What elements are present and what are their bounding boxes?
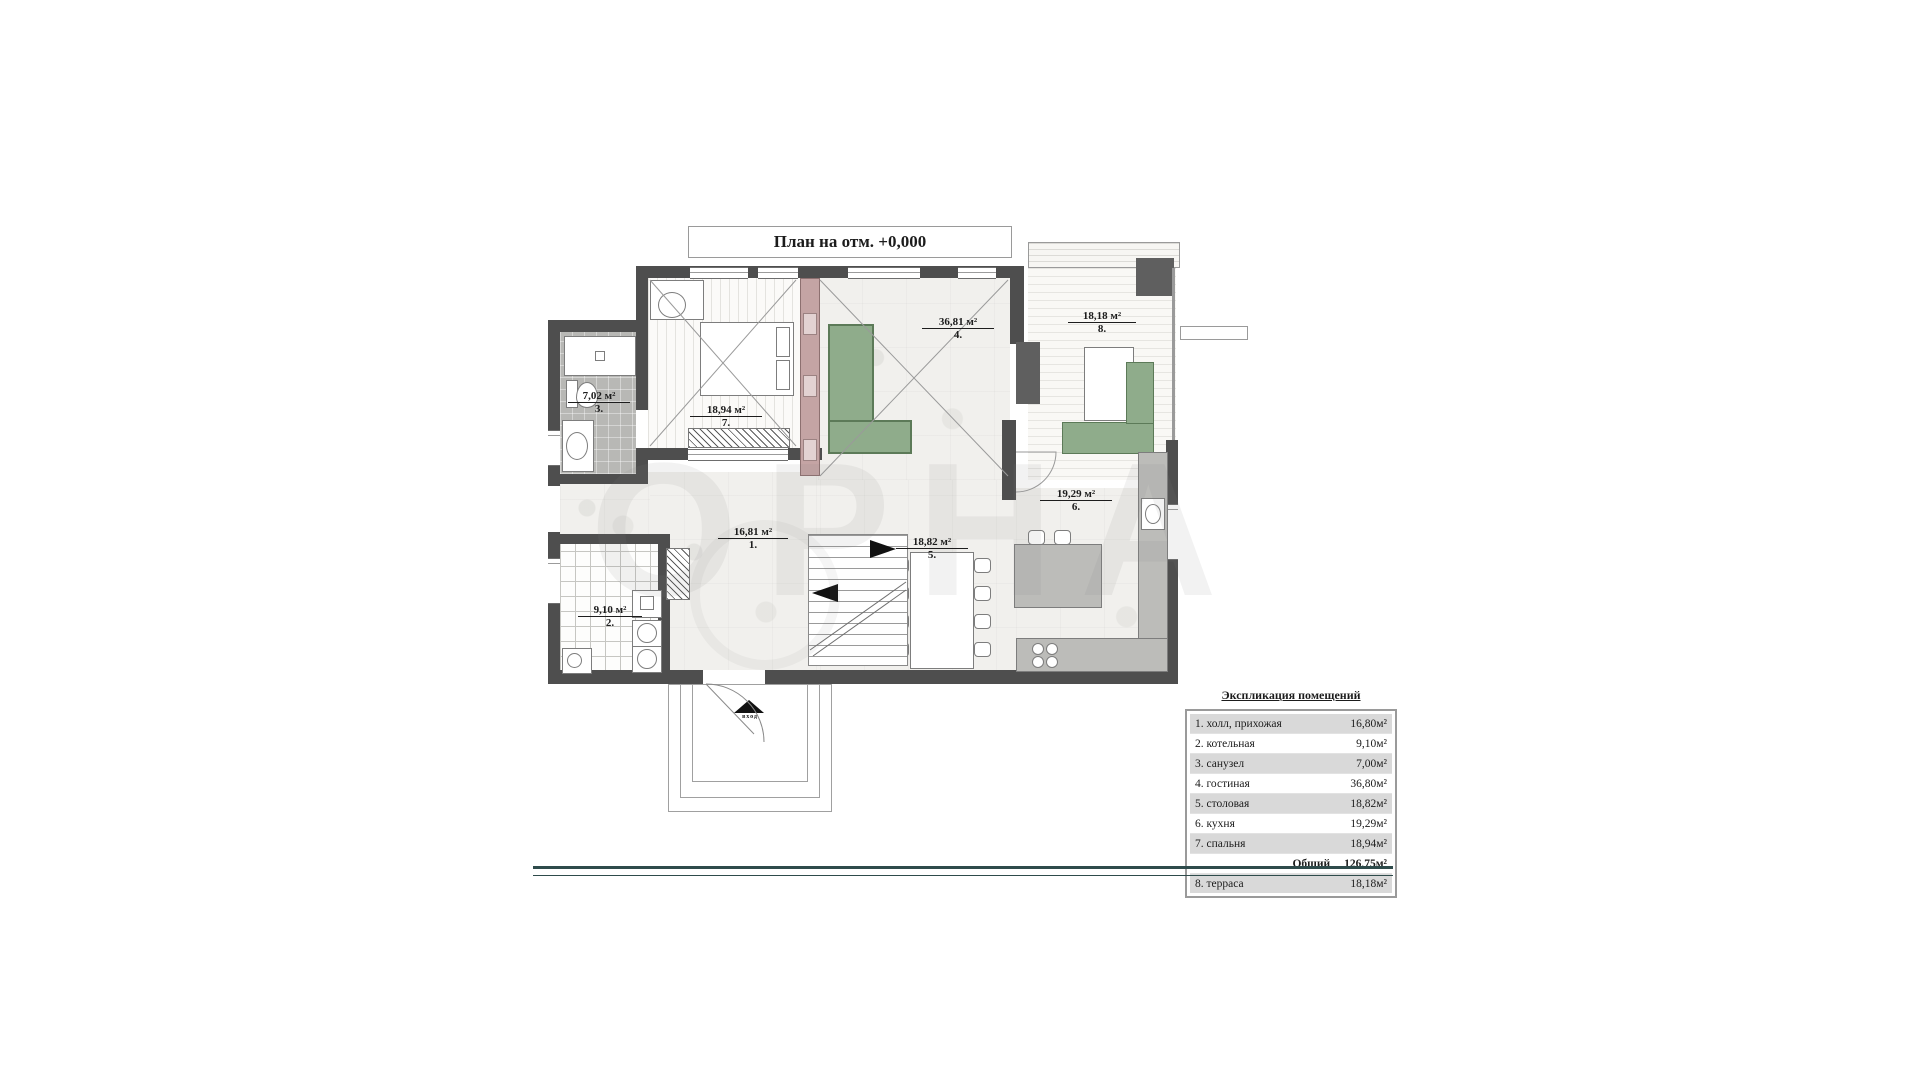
window-boiler-left [548,558,560,604]
legend-row-terrace: 8. терраса18,18м² [1190,874,1392,893]
room-label-living: 36,81 м²4. [922,316,994,341]
closet-door-2 [803,375,817,397]
window-living-1 [848,267,920,279]
legend-row: 7. спальня18,94м² [1190,834,1392,854]
closet-door-1 [803,313,817,335]
wall-left-lower [548,532,560,684]
bed-pillow-1 [776,327,790,357]
entry-label: вход [726,714,774,720]
legend-row: 1. холл, прихожая16,80м² [1190,714,1392,734]
wall-bottom-right [765,670,1178,684]
bedroom-pouf [658,292,686,318]
stove-burner [1032,656,1044,668]
room-label-terrace: 18,18 м²8. [1068,310,1136,335]
legend-row: 5. столовая18,82м² [1190,794,1392,814]
terrace-railing [1180,326,1248,340]
room-label-kitchen: 19,29 м²6. [1040,488,1112,513]
washer-drum-2 [637,649,657,669]
room-label-dining: 18,82 м²5. [896,536,968,561]
window-living-2 [958,267,996,279]
room-label-bathroom: 7,02 м²3. [568,390,630,415]
window-bedroom-2 [758,267,798,279]
room-label-bedroom: 18,94 м²7. [690,404,762,429]
legend-row: 4. гостиная36,80м² [1190,774,1392,794]
room-label-boiler: 9,10 м²2. [578,604,642,629]
legend-row: 3. санузел7,00м² [1190,754,1392,774]
bed-pillow-2 [776,360,790,390]
window-bathroom-left [548,430,560,466]
terrace-tv-block [1016,342,1040,404]
entry-arrow-icon [734,700,764,713]
room-label-hall: 16,81 м²1. [718,526,788,551]
porch-step-inner [692,684,808,782]
legend-header: Экспликация помещений [1185,688,1397,703]
boiler-unit-dial [567,653,582,668]
terrace-right-edge [1172,268,1175,440]
entry-door-gap [703,670,765,684]
window-bedroom-1 [690,267,748,279]
shower-drain [595,351,605,361]
legend-row: 2. котельная9,10м² [1190,734,1392,754]
wall-living-terrace [1010,266,1024,344]
bathroom-sink-basin [566,432,588,460]
bottom-divider-line [533,866,1393,876]
terrace-bench-vertical [1126,362,1154,424]
plan-title: План на отм. +0,000 [688,226,1012,258]
wall-bathroom-top [548,320,640,332]
terrace-pillar [1136,258,1174,296]
stove-burner [1046,656,1058,668]
legend-row: 6. кухня19,29м² [1190,814,1392,834]
